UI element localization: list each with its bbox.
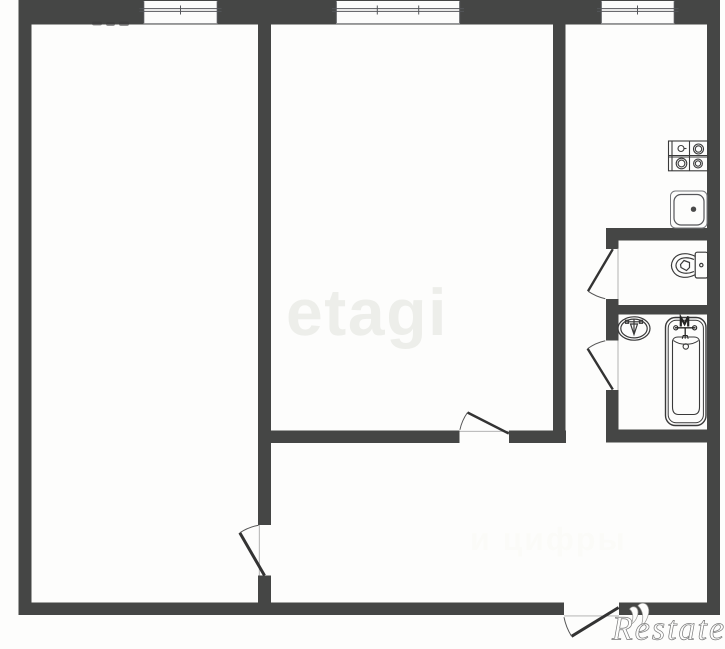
svg-text:и цифры: и цифры: [470, 521, 627, 557]
svg-text:etagi: etagi: [286, 275, 448, 349]
svg-text:Restate: Restate: [611, 610, 725, 644]
